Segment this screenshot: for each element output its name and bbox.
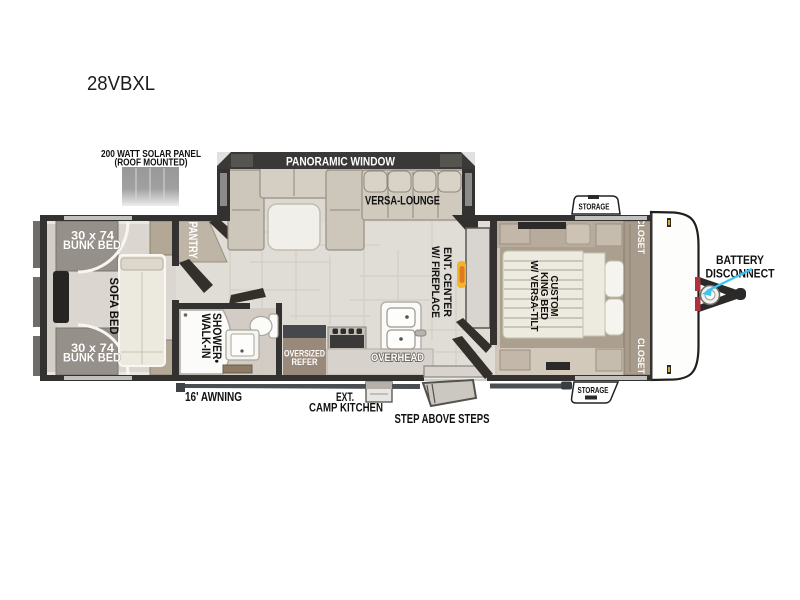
svg-text:STORAGE: STORAGE: [579, 202, 610, 212]
svg-text:(ROOF MOUNTED): (ROOF MOUNTED): [115, 158, 188, 169]
svg-text:VERSA-LOUNGE: VERSA-LOUNGE: [365, 194, 440, 208]
svg-text:SOFA BED: SOFA BED: [107, 278, 119, 335]
svg-text:STORAGE: STORAGE: [578, 385, 609, 395]
svg-text:SHOWER•: SHOWER•: [210, 313, 224, 363]
svg-text:DISCONNECT: DISCONNECT: [706, 267, 776, 281]
svg-text:REFER: REFER: [292, 357, 318, 367]
svg-text:BATTERY: BATTERY: [716, 253, 764, 267]
svg-text:BUNK BED: BUNK BED: [63, 238, 121, 252]
svg-text:W/ VERSA-TILT: W/ VERSA-TILT: [528, 261, 540, 333]
svg-text:PANTRY: PANTRY: [186, 222, 198, 259]
svg-text:CLOSET: CLOSET: [635, 338, 646, 374]
svg-text:ENT. CENTER: ENT. CENTER: [441, 247, 453, 317]
svg-text:CLOSET: CLOSET: [635, 218, 646, 254]
svg-text:BUNK BED: BUNK BED: [63, 351, 121, 365]
svg-text:28VBXL: 28VBXL: [87, 73, 155, 95]
svg-text:OVERHEAD: OVERHEAD: [371, 352, 424, 364]
svg-text:16' AWNING: 16' AWNING: [185, 390, 242, 404]
svg-text:W/ FIREPLACE: W/ FIREPLACE: [429, 246, 441, 318]
svg-text:PANORAMIC WINDOW: PANORAMIC WINDOW: [286, 155, 396, 169]
svg-text:STEP ABOVE STEPS: STEP ABOVE STEPS: [395, 411, 490, 426]
svg-text:CAMP KITCHEN: CAMP KITCHEN: [309, 403, 383, 415]
